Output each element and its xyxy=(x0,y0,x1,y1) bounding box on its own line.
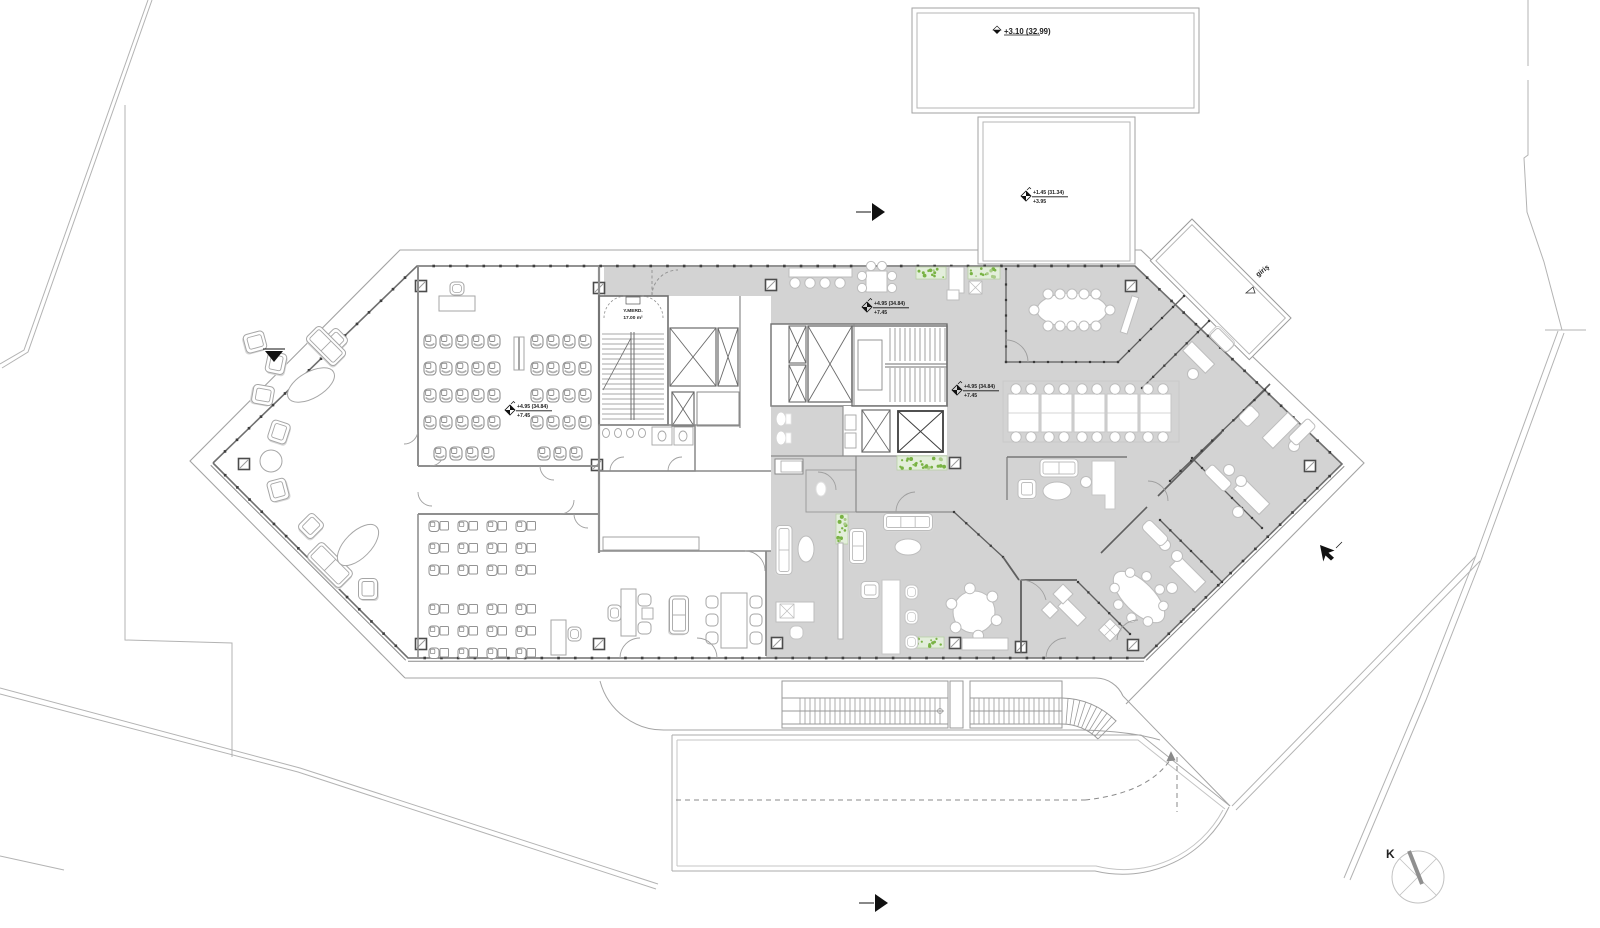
svg-text:+4.95 (34.84): +4.95 (34.84) xyxy=(517,404,548,410)
svg-text:17.00 m²: 17.00 m² xyxy=(623,315,643,321)
svg-text:+3.95: +3.95 xyxy=(1033,199,1046,205)
svg-text:+7.45: +7.45 xyxy=(874,310,887,316)
svg-text:Y.MERD.: Y.MERD. xyxy=(623,308,642,314)
svg-text:+4.95 (34.84): +4.95 (34.84) xyxy=(964,384,995,390)
svg-text:+7.45: +7.45 xyxy=(964,393,977,399)
svg-text:+4.95 (34.84): +4.95 (34.84) xyxy=(874,301,905,307)
svg-text:K: K xyxy=(1386,847,1395,861)
svg-text:+7.45: +7.45 xyxy=(517,413,530,419)
svg-text:+1.45 (31.34): +1.45 (31.34) xyxy=(1033,190,1064,196)
